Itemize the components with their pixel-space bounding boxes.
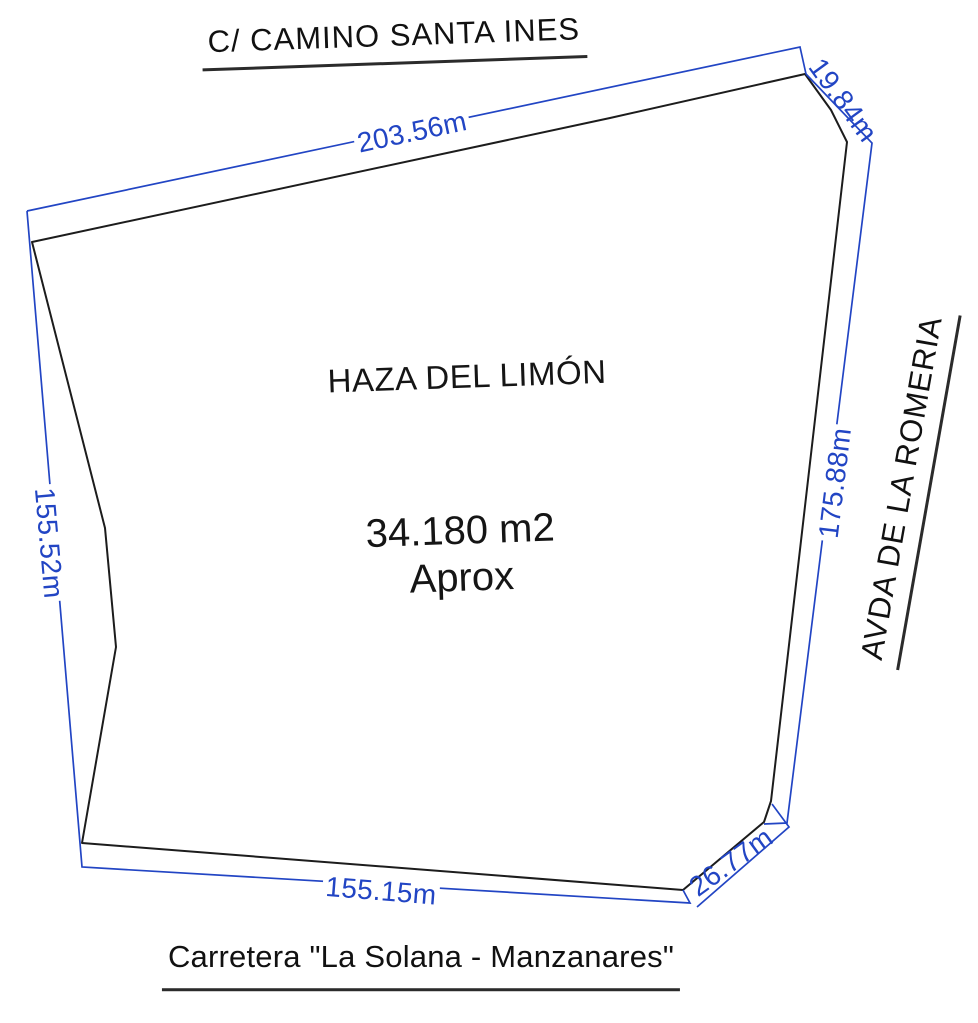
dimension-line-left-bottom xyxy=(27,211,690,903)
parcel-area: 34.180 m2 Aprox xyxy=(365,505,557,606)
plot-plan-canvas: C/ CAMINO SANTA INES AVDA DE LA ROMERIA … xyxy=(0,0,978,1023)
parcel-area-note: Aprox xyxy=(367,552,558,606)
dimension-line-topright-right xyxy=(764,74,872,824)
parcel-area-value: 34.180 m2 xyxy=(365,505,556,559)
parcel-outline xyxy=(32,74,847,890)
street-name-bottom: Carretera "La Solana - Manzanares" xyxy=(162,941,680,991)
